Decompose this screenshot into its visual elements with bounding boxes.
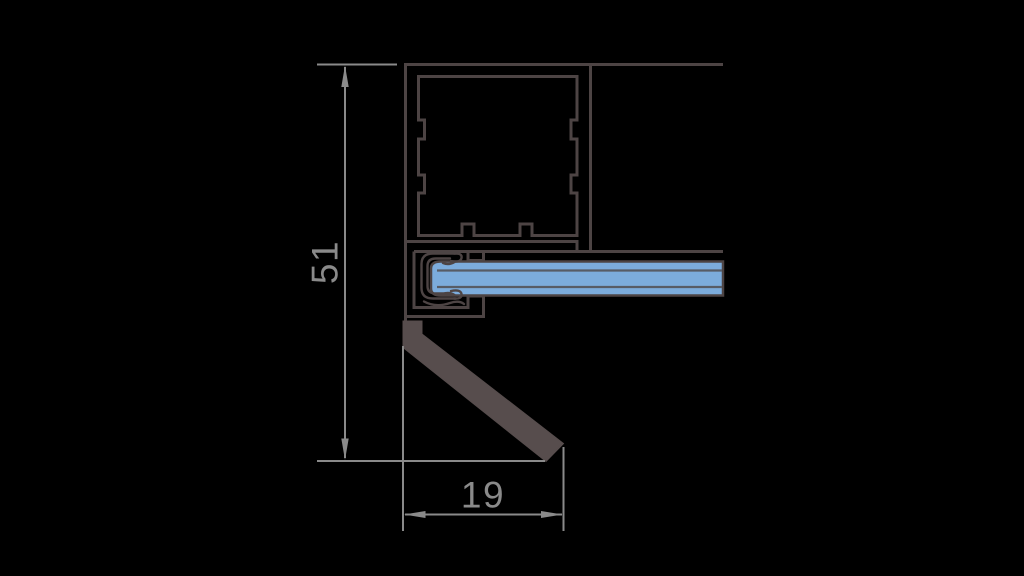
wedge-gasket (403, 321, 564, 462)
arrow-right-icon (541, 511, 563, 518)
screw-chamber-outline (419, 77, 578, 236)
drawing-canvas: 51 19 (0, 0, 1024, 576)
arrow-down-icon (341, 439, 348, 461)
gasket-foot-squiggle (424, 302, 464, 306)
arrow-left-icon (404, 511, 426, 518)
dim-label-height: 51 (305, 240, 346, 284)
dim-label-width: 19 (461, 475, 505, 516)
arrow-up-icon (341, 66, 348, 88)
glass-panel (431, 262, 723, 296)
glass-fill (431, 262, 723, 296)
profile-drawing: 51 19 (0, 0, 1024, 576)
wedge-fill (403, 321, 564, 462)
